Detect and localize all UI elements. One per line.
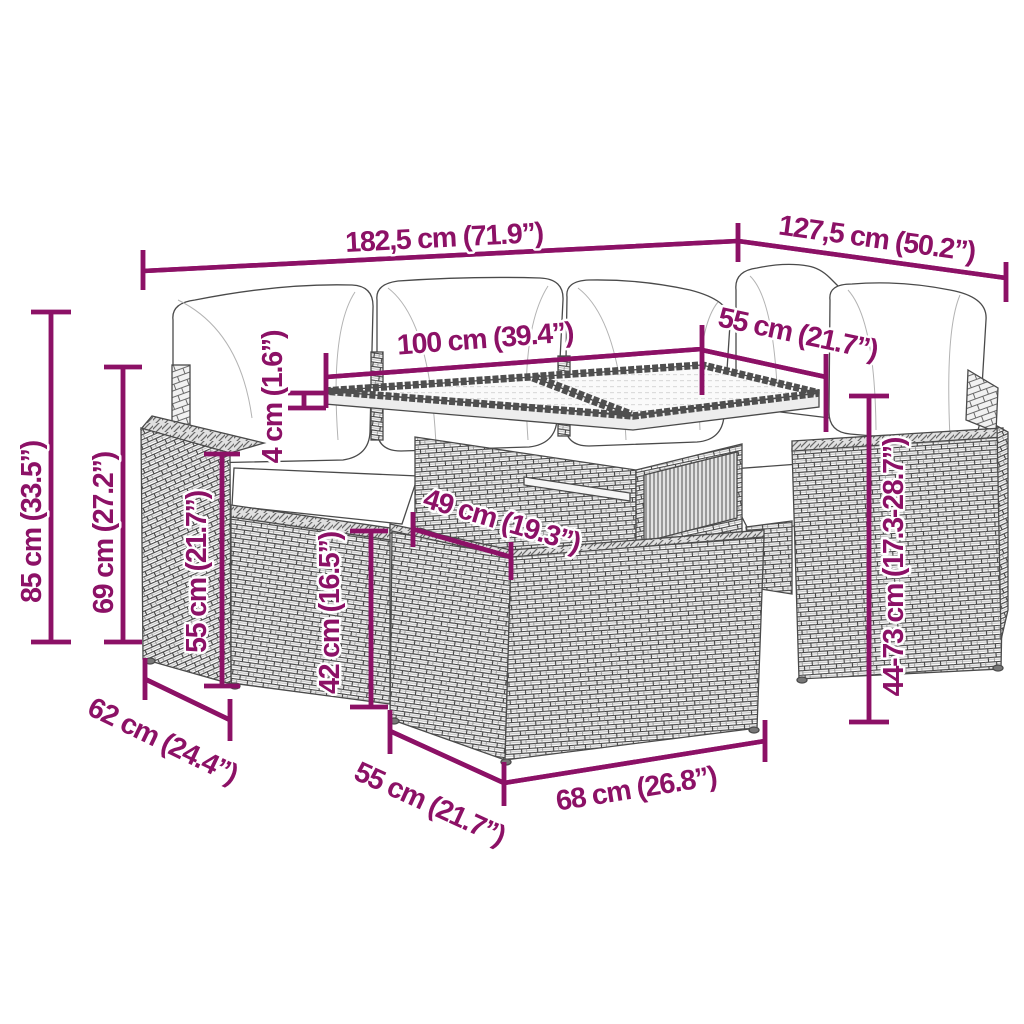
svg-text:42 cm (16.5”): 42 cm (16.5”): [314, 531, 346, 694]
svg-text:85 cm (33.5”): 85 cm (33.5”): [16, 440, 48, 603]
svg-text:69 cm (27.2”): 69 cm (27.2”): [88, 451, 120, 614]
svg-text:55 cm (21.7”): 55 cm (21.7”): [181, 490, 213, 653]
svg-text:4 cm (1.6”): 4 cm (1.6”): [257, 330, 289, 463]
svg-text:44-73 cm (17.3-28.7”): 44-73 cm (17.3-28.7”): [878, 437, 910, 696]
